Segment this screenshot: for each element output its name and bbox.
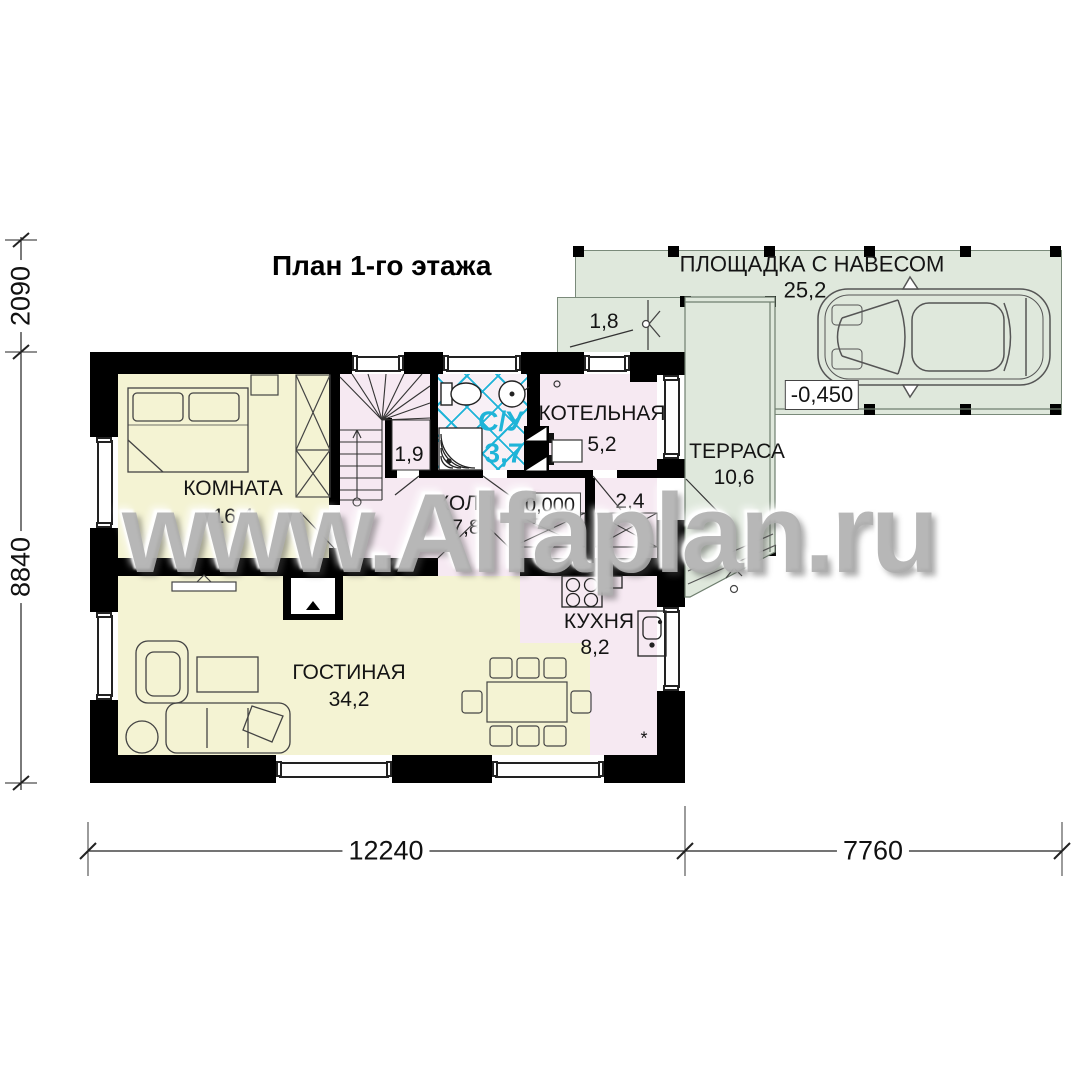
carport-level-label: -0,450 [785,380,859,410]
stair-window [352,352,404,374]
boiler-area: 5,2 [587,434,616,456]
terrace-label: ТЕРРАСА [689,441,785,463]
kitchen-label: КУХНЯ [564,611,634,633]
carport-post [573,246,584,257]
porch-area-label: 1,8 [589,311,618,333]
bathroom-area: 3,7 [485,438,524,467]
porch-post [680,296,691,307]
boiler-label: КОТЕЛЬНАЯ [538,403,665,425]
carport-post [764,404,775,415]
stair-closet-area-label: 1,9 [394,444,423,466]
carport-post [668,246,679,257]
carport-post [864,404,875,415]
kitchen-window [657,607,685,691]
wall-closet [385,418,392,470]
entry-porch-area [557,297,687,354]
dining-zone-floor [520,643,590,755]
dining-window-bottom [492,755,604,783]
watermark: www.Alfaplan.ru [122,478,935,590]
carport-post [960,404,971,415]
carport-post [1050,246,1061,257]
carport-post [960,246,971,257]
bedroom-window [90,437,118,528]
living-window-bottom [276,755,392,783]
dim-bottom-right: 7760 [837,836,909,867]
dim-bottom-left: 12240 [342,836,429,867]
kitchen-mark: * [640,730,647,749]
carport-area: 25,2 [784,278,827,301]
bathroom-label: С/У [478,406,523,435]
plan-title: План 1-го этажа [272,250,491,282]
boiler-window-top [584,352,630,374]
bathroom-window [443,352,521,374]
wall-bath-left [430,374,438,470]
living-window-left [90,612,118,700]
dim-left-lower: 8840 [6,531,37,603]
porch-post [765,296,776,307]
kitchen-area: 8,2 [580,637,609,659]
wall-left [90,352,118,783]
carport-post [1050,404,1061,415]
dim-left-upper: 2090 [6,260,37,332]
flue-stack [524,426,549,472]
living-area: 34,2 [329,689,370,711]
living-label: ГОСТИНАЯ [292,662,405,684]
carport-label: ПЛОЩАДКА С НАВЕСОМ [680,252,945,275]
floor-plan-canvas: План 1-го этажа ПЛОЩАДКА С НАВЕСОМ 25,2 … [0,0,1080,1080]
